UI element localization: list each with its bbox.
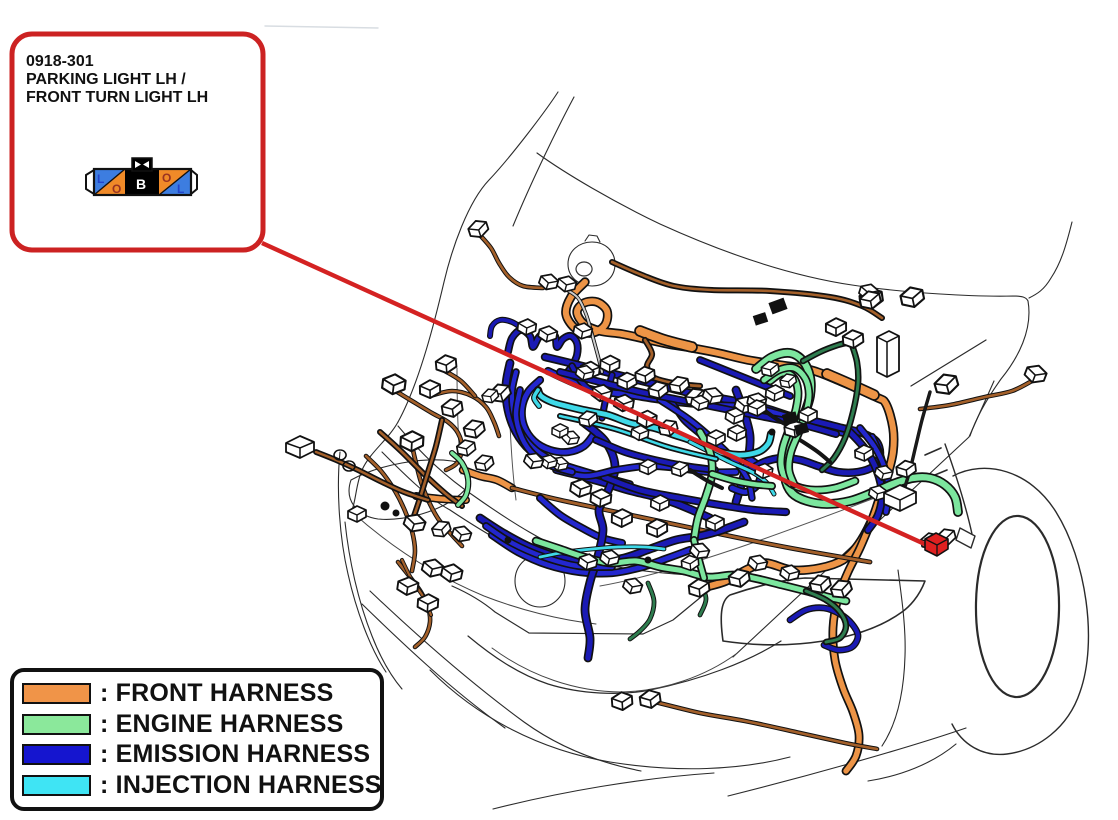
svg-text:O: O [162,171,171,185]
svg-text:PARKING LIGHT LH /: PARKING LIGHT LH / [26,71,186,88]
svg-text:: EMISSION HARNESS: : EMISSION HARNESS [100,740,370,768]
svg-text:: ENGINE HARNESS: : ENGINE HARNESS [100,710,344,738]
svg-text:O: O [112,182,121,196]
svg-text:: INJECTION HARNESS: : INJECTION HARNESS [100,771,382,799]
svg-text:L: L [177,182,184,196]
svg-text:FRONT TURN LIGHT LH: FRONT TURN LIGHT LH [26,89,208,106]
svg-text:L: L [97,172,104,186]
svg-text:B: B [136,176,146,192]
svg-text:: FRONT HARNESS: : FRONT HARNESS [100,679,334,707]
svg-text:0918-301: 0918-301 [26,53,94,70]
